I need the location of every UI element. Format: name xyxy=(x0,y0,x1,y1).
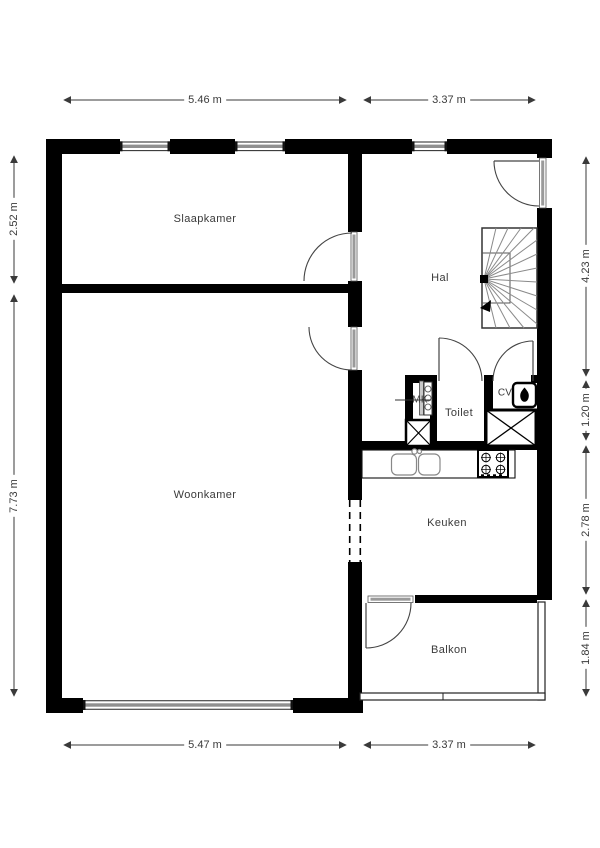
interior-walls xyxy=(62,154,537,713)
dim-top-right: 3.37 m xyxy=(428,94,470,106)
exterior-walls xyxy=(46,139,552,713)
shaft-x-small xyxy=(406,420,431,446)
cv-boiler-icon xyxy=(513,383,536,407)
floorplan-page: Slaapkamer Hal Toilet CV MK Woonkamer Ke… xyxy=(0,0,600,848)
dim-left-lower: 7.73 m xyxy=(8,475,20,517)
window-slaapkamer-2 xyxy=(235,141,285,151)
stairs-icon xyxy=(480,228,537,328)
window-slaapkamer-1 xyxy=(120,141,170,151)
dim-bottom-left: 5.47 m xyxy=(184,739,226,751)
dim-left-upper: 2.52 m xyxy=(8,198,20,240)
room-label-cv: CV xyxy=(498,388,512,399)
room-label-woonkamer: Woonkamer xyxy=(174,489,237,501)
floorplan-canvas xyxy=(0,0,600,848)
room-label-mk: MK xyxy=(412,395,427,406)
dim-right-1: 4.23 m xyxy=(580,245,592,287)
shaft-x-large xyxy=(486,410,536,446)
dim-right-4: 1.84 m xyxy=(580,627,592,669)
toilet-door xyxy=(439,338,482,381)
window-woonkamer xyxy=(83,700,293,710)
room-label-toilet: Toilet xyxy=(445,407,473,419)
cv-door xyxy=(493,341,533,381)
room-label-balkon: Balkon xyxy=(431,644,467,656)
dim-right-3: 2.78 m xyxy=(580,499,592,541)
stove-icon xyxy=(478,450,508,477)
window-hal xyxy=(412,141,447,151)
livingroom-door xyxy=(309,327,357,370)
windows xyxy=(83,141,447,710)
dim-bottom-right: 3.37 m xyxy=(428,739,470,751)
open-passage-dashed xyxy=(350,500,361,562)
room-label-slaapkamer: Slaapkamer xyxy=(174,213,237,225)
balcony-door xyxy=(366,596,413,648)
room-label-hal: Hal xyxy=(431,272,449,284)
entrance-door xyxy=(494,158,546,208)
dim-top-left: 5.46 m xyxy=(184,94,226,106)
bedroom-door xyxy=(304,232,357,281)
dim-right-2: 1.20 m xyxy=(580,389,592,431)
room-label-keuken: Keuken xyxy=(427,517,467,529)
